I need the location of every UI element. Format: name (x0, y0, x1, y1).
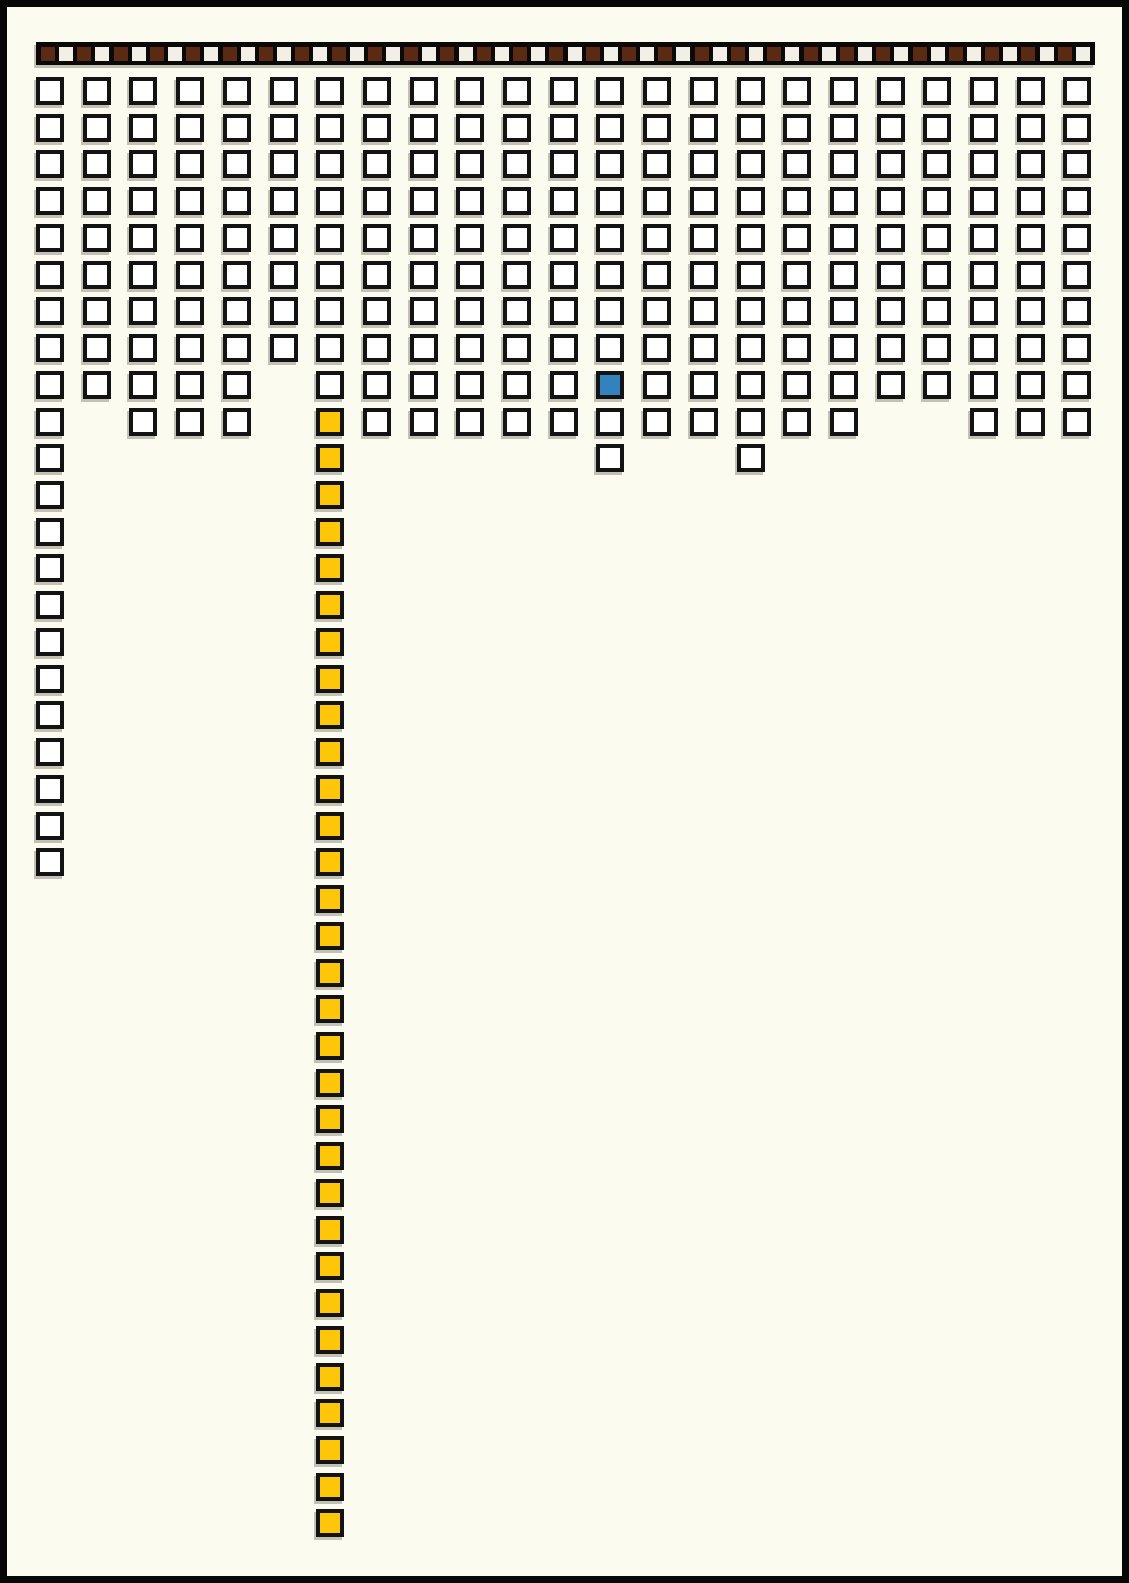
grid-cell-white (1017, 261, 1045, 289)
grid-cell-white (643, 371, 671, 399)
grid-cell-white (456, 224, 484, 252)
grid-cell-white (783, 297, 811, 325)
grid-cell-white (176, 77, 204, 105)
grid-cell-white (410, 408, 438, 436)
grid-cell-white (1017, 150, 1045, 178)
grid-cell-white (456, 297, 484, 325)
grid-cell-white (643, 334, 671, 362)
grid-cell-white (1063, 114, 1091, 142)
waffle-grid (0, 0, 1129, 1583)
grid-cell-white (596, 408, 624, 436)
strip-chip-light (386, 47, 400, 61)
strip-chip-dark (1058, 47, 1072, 61)
grid-cell-white (363, 371, 391, 399)
grid-cell-white (36, 775, 64, 803)
grid-cell-white (223, 150, 251, 178)
grid-cell-white (877, 297, 905, 325)
grid-cell-white (83, 371, 111, 399)
header-strip (36, 42, 1095, 65)
grid-cell-white (830, 261, 858, 289)
strip-chip-dark (1021, 47, 1035, 61)
grid-cell-white (923, 150, 951, 178)
grid-cell-white (550, 408, 578, 436)
grid-cell-white (877, 77, 905, 105)
grid-cell-white (690, 187, 718, 215)
grid-cell-white (783, 371, 811, 399)
grid-cell-yellow (316, 1363, 344, 1391)
grid-cell-white (223, 297, 251, 325)
grid-cell-white (36, 261, 64, 289)
grid-cell-white (596, 150, 624, 178)
grid-cell-white (176, 224, 204, 252)
grid-cell-white (223, 224, 251, 252)
grid-cell-white (1017, 408, 1045, 436)
grid-cell-white (36, 444, 64, 472)
grid-cell-yellow (316, 922, 344, 950)
grid-cell-white (923, 261, 951, 289)
strip-chip-dark (622, 47, 636, 61)
grid-cell-white (410, 114, 438, 142)
grid-cell-white (363, 187, 391, 215)
grid-cell-white (363, 334, 391, 362)
grid-cell-white (1017, 371, 1045, 399)
grid-cell-white (1063, 261, 1091, 289)
grid-cell-white (596, 224, 624, 252)
grid-cell-white (456, 187, 484, 215)
strip-chip-dark (731, 47, 745, 61)
grid-cell-white (36, 554, 64, 582)
grid-cell-white (830, 77, 858, 105)
strip-chip-light (1003, 47, 1017, 61)
grid-cell-white (223, 114, 251, 142)
grid-cell-white (1017, 187, 1045, 215)
grid-cell-yellow (316, 591, 344, 619)
grid-cell-white (830, 187, 858, 215)
grid-cell-white (830, 114, 858, 142)
grid-cell-white (456, 150, 484, 178)
grid-cell-white (1063, 150, 1091, 178)
grid-cell-white (550, 297, 578, 325)
grid-cell-white (363, 77, 391, 105)
grid-cell-white (83, 187, 111, 215)
strip-chip-dark (840, 47, 854, 61)
grid-cell-white (176, 150, 204, 178)
grid-cell-white (316, 297, 344, 325)
grid-cell-yellow (316, 1069, 344, 1097)
grid-cell-white (1063, 408, 1091, 436)
grid-cell-white (690, 77, 718, 105)
grid-cell-white (783, 114, 811, 142)
grid-cell-white (1063, 371, 1091, 399)
grid-cell-white (270, 187, 298, 215)
strip-chip-light (459, 47, 473, 61)
grid-cell-white (830, 371, 858, 399)
grid-cell-white (970, 334, 998, 362)
strip-chip-light (531, 47, 545, 61)
grid-cell-white (1063, 334, 1091, 362)
grid-cell-white (36, 701, 64, 729)
grid-cell-white (503, 408, 531, 436)
grid-cell-white (737, 224, 765, 252)
grid-cell-white (550, 334, 578, 362)
strip-chip-dark (695, 47, 709, 61)
grid-cell-yellow (316, 775, 344, 803)
strip-chip-dark (913, 47, 927, 61)
strip-chip-light (495, 47, 509, 61)
grid-cell-white (456, 261, 484, 289)
grid-cell-white (737, 334, 765, 362)
grid-cell-white (129, 261, 157, 289)
strip-chip-dark (949, 47, 963, 61)
grid-cell-white (737, 187, 765, 215)
grid-cell-white (737, 114, 765, 142)
grid-cell-yellow (316, 848, 344, 876)
grid-cell-yellow (316, 1326, 344, 1354)
grid-cell-white (690, 224, 718, 252)
grid-cell-white (970, 187, 998, 215)
grid-cell-white (923, 334, 951, 362)
grid-cell-yellow (316, 959, 344, 987)
grid-cell-white (737, 444, 765, 472)
strip-chip-dark (658, 47, 672, 61)
grid-cell-white (1017, 224, 1045, 252)
strip-chip-light (95, 47, 109, 61)
grid-cell-white (176, 408, 204, 436)
grid-cell-white (36, 150, 64, 178)
grid-cell-white (83, 224, 111, 252)
grid-cell-white (783, 224, 811, 252)
grid-cell-white (970, 114, 998, 142)
grid-cell-white (503, 261, 531, 289)
grid-cell-white (36, 591, 64, 619)
grid-cell-white (690, 261, 718, 289)
grid-cell-white (923, 77, 951, 105)
strip-chip-light (1076, 47, 1090, 61)
strip-chip-dark (513, 47, 527, 61)
strip-chip-dark (876, 47, 890, 61)
grid-cell-white (503, 371, 531, 399)
grid-cell-white (1063, 224, 1091, 252)
grid-cell-white (970, 77, 998, 105)
grid-cell-yellow (316, 481, 344, 509)
grid-cell-white (223, 371, 251, 399)
grid-cell-yellow (316, 554, 344, 582)
grid-cell-white (316, 371, 344, 399)
strip-chip-dark (767, 47, 781, 61)
grid-cell-white (83, 334, 111, 362)
strip-chip-dark (186, 47, 200, 61)
grid-cell-white (923, 187, 951, 215)
grid-cell-yellow (316, 628, 344, 656)
grid-cell-white (129, 334, 157, 362)
grid-cell-white (456, 77, 484, 105)
grid-cell-white (783, 77, 811, 105)
grid-cell-yellow (316, 1105, 344, 1133)
grid-cell-white (1017, 297, 1045, 325)
grid-cell-white (596, 77, 624, 105)
grid-cell-white (316, 150, 344, 178)
grid-cell-white (1017, 77, 1045, 105)
grid-cell-white (877, 261, 905, 289)
grid-cell-yellow (316, 1289, 344, 1317)
grid-cell-yellow (316, 518, 344, 546)
grid-cell-white (737, 261, 765, 289)
grid-cell-white (877, 150, 905, 178)
grid-cell-white (830, 224, 858, 252)
grid-cell-white (410, 224, 438, 252)
grid-cell-white (830, 408, 858, 436)
grid-cell-white (129, 114, 157, 142)
grid-cell-white (270, 334, 298, 362)
grid-cell-white (36, 848, 64, 876)
grid-cell-white (643, 150, 671, 178)
grid-cell-white (783, 187, 811, 215)
grid-cell-white (410, 150, 438, 178)
grid-cell-white (970, 297, 998, 325)
grid-cell-white (36, 297, 64, 325)
strip-chip-dark (223, 47, 237, 61)
grid-cell-white (643, 261, 671, 289)
strip-chip-light (277, 47, 291, 61)
grid-cell-white (970, 408, 998, 436)
grid-cell-white (36, 114, 64, 142)
grid-cell-white (596, 444, 624, 472)
grid-cell-white (596, 334, 624, 362)
grid-cell-white (596, 297, 624, 325)
grid-cell-white (363, 297, 391, 325)
grid-cell-white (643, 77, 671, 105)
waffle-poster (0, 0, 1129, 1583)
grid-cell-yellow (316, 1436, 344, 1464)
grid-cell-white (36, 481, 64, 509)
grid-cell-yellow (316, 1032, 344, 1060)
grid-cell-yellow (316, 995, 344, 1023)
strip-chip-light (894, 47, 908, 61)
grid-cell-white (176, 371, 204, 399)
grid-cell-white (176, 297, 204, 325)
grid-cell-white (410, 77, 438, 105)
strip-chip-dark (804, 47, 818, 61)
grid-cell-white (690, 334, 718, 362)
grid-cell-white (176, 334, 204, 362)
strip-chip-light (568, 47, 582, 61)
grid-cell-white (129, 297, 157, 325)
grid-cell-white (690, 150, 718, 178)
grid-cell-white (503, 334, 531, 362)
grid-cell-white (270, 114, 298, 142)
strip-chip-light (967, 47, 981, 61)
grid-cell-white (783, 261, 811, 289)
grid-cell-white (129, 187, 157, 215)
grid-cell-white (503, 150, 531, 178)
grid-cell-white (690, 408, 718, 436)
grid-cell-white (363, 261, 391, 289)
grid-cell-yellow (316, 1473, 344, 1501)
grid-cell-white (737, 297, 765, 325)
grid-cell-white (270, 150, 298, 178)
strip-chip-light (822, 47, 836, 61)
grid-cell-white (223, 408, 251, 436)
grid-cell-white (129, 150, 157, 178)
grid-cell-white (830, 150, 858, 178)
grid-cell-white (363, 224, 391, 252)
grid-cell-white (129, 371, 157, 399)
strip-chip-light (350, 47, 364, 61)
grid-cell-yellow (316, 665, 344, 693)
grid-cell-white (456, 334, 484, 362)
strip-chip-dark (440, 47, 454, 61)
grid-cell-white (83, 150, 111, 178)
grid-cell-white (643, 297, 671, 325)
grid-cell-yellow (316, 1252, 344, 1280)
grid-cell-white (410, 261, 438, 289)
grid-cell-white (129, 77, 157, 105)
strip-chip-light (204, 47, 218, 61)
grid-cell-yellow (316, 701, 344, 729)
grid-cell-white (877, 224, 905, 252)
strip-chip-dark (259, 47, 273, 61)
strip-chip-light (422, 47, 436, 61)
grid-cell-white (176, 187, 204, 215)
grid-cell-white (176, 261, 204, 289)
grid-cell-white (363, 114, 391, 142)
grid-cell-white (970, 224, 998, 252)
strip-chip-light (241, 47, 255, 61)
grid-cell-white (970, 150, 998, 178)
grid-cell-white (36, 187, 64, 215)
grid-cell-white (316, 334, 344, 362)
grid-cell-white (129, 224, 157, 252)
grid-cell-white (690, 114, 718, 142)
strip-chip-light (931, 47, 945, 61)
grid-cell-white (1017, 114, 1045, 142)
grid-cell-white (503, 114, 531, 142)
grid-cell-white (410, 187, 438, 215)
grid-cell-white (316, 187, 344, 215)
grid-cell-white (923, 297, 951, 325)
grid-cell-white (36, 371, 64, 399)
grid-cell-white (410, 334, 438, 362)
grid-cell-white (596, 114, 624, 142)
grid-cell-yellow (316, 408, 344, 436)
strip-chip-dark (368, 47, 382, 61)
grid-cell-white (270, 77, 298, 105)
strip-chip-dark (404, 47, 418, 61)
grid-cell-white (456, 114, 484, 142)
grid-cell-white (737, 408, 765, 436)
grid-cell-white (223, 77, 251, 105)
grid-cell-white (596, 261, 624, 289)
grid-cell-white (36, 812, 64, 840)
grid-cell-yellow (316, 812, 344, 840)
grid-cell-white (690, 297, 718, 325)
grid-cell-white (36, 77, 64, 105)
grid-cell-white (877, 114, 905, 142)
grid-cell-white (316, 114, 344, 142)
grid-cell-white (223, 187, 251, 215)
grid-cell-white (550, 224, 578, 252)
grid-cell-white (970, 371, 998, 399)
strip-chip-light (749, 47, 763, 61)
grid-cell-white (36, 628, 64, 656)
grid-cell-white (36, 408, 64, 436)
strip-chip-dark (477, 47, 491, 61)
grid-cell-white (129, 408, 157, 436)
strip-chip-dark (150, 47, 164, 61)
grid-cell-white (737, 150, 765, 178)
grid-cell-white (316, 77, 344, 105)
grid-cell-yellow (316, 1216, 344, 1244)
grid-cell-white (737, 371, 765, 399)
grid-cell-white (36, 518, 64, 546)
grid-cell-white (923, 224, 951, 252)
grid-cell-white (83, 261, 111, 289)
grid-cell-white (503, 297, 531, 325)
grid-cell-white (363, 150, 391, 178)
strip-chip-light (59, 47, 73, 61)
grid-cell-white (270, 297, 298, 325)
grid-cell-white (223, 261, 251, 289)
grid-cell-white (877, 334, 905, 362)
grid-cell-yellow (316, 444, 344, 472)
grid-cell-white (643, 408, 671, 436)
strip-chip-dark (114, 47, 128, 61)
grid-cell-white (783, 408, 811, 436)
strip-chip-dark (41, 47, 55, 61)
strip-chip-dark (586, 47, 600, 61)
grid-cell-white (503, 224, 531, 252)
grid-cell-white (970, 261, 998, 289)
grid-cell-white (223, 334, 251, 362)
grid-cell-white (503, 187, 531, 215)
grid-cell-yellow (316, 885, 344, 913)
grid-cell-white (830, 297, 858, 325)
grid-cell-white (176, 114, 204, 142)
grid-cell-white (36, 224, 64, 252)
grid-cell-white (877, 371, 905, 399)
grid-cell-yellow (316, 1142, 344, 1170)
grid-cell-yellow (316, 1509, 344, 1537)
grid-cell-white (550, 150, 578, 178)
grid-cell-white (1063, 77, 1091, 105)
grid-cell-white (830, 334, 858, 362)
grid-cell-white (270, 261, 298, 289)
strip-chip-dark (332, 47, 346, 61)
grid-cell-white (270, 224, 298, 252)
strip-chip-light (132, 47, 146, 61)
strip-chip-light (604, 47, 618, 61)
grid-cell-white (783, 334, 811, 362)
grid-cell-white (596, 187, 624, 215)
grid-cell-white (316, 261, 344, 289)
grid-cell-white (410, 297, 438, 325)
grid-cell-white (643, 187, 671, 215)
strip-chip-light (785, 47, 799, 61)
strip-chip-dark (985, 47, 999, 61)
grid-cell-white (83, 77, 111, 105)
grid-cell-white (737, 77, 765, 105)
grid-cell-white (643, 224, 671, 252)
grid-cell-white (550, 114, 578, 142)
grid-cell-white (783, 150, 811, 178)
grid-cell-white (36, 665, 64, 693)
strip-chip-light (313, 47, 327, 61)
grid-cell-white (36, 738, 64, 766)
grid-cell-white (550, 371, 578, 399)
grid-cell-blue (596, 371, 624, 399)
grid-cell-white (456, 408, 484, 436)
strip-chip-dark (77, 47, 91, 61)
